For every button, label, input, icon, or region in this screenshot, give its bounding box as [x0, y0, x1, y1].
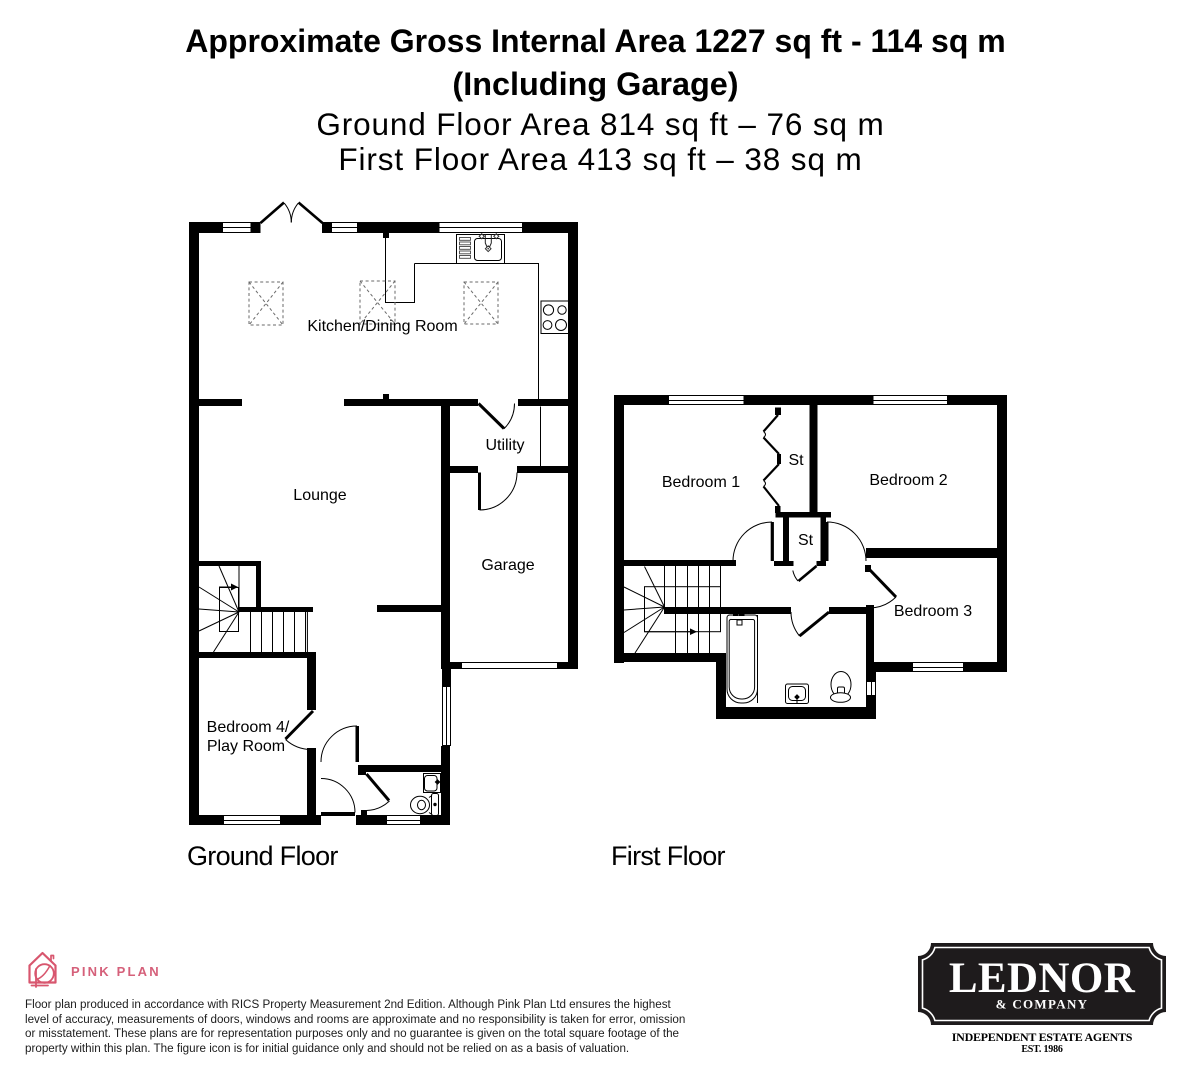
svg-text:Bedroom 2: Bedroom 2 [869, 472, 947, 489]
svg-text:Lounge: Lounge [293, 487, 346, 504]
svg-text:LEDNOR: LEDNOR [949, 955, 1136, 1002]
svg-text:Bedroom 4/: Bedroom 4/ [207, 719, 290, 736]
svg-text:& COMPANY: & COMPANY [996, 997, 1089, 1012]
svg-text:Kitchen/Dining Room: Kitchen/Dining Room [307, 318, 457, 335]
svg-text:Play Room: Play Room [207, 738, 285, 755]
svg-text:St: St [798, 532, 814, 549]
svg-text:Ground Floor: Ground Floor [187, 841, 338, 871]
svg-text:Bedroom 3: Bedroom 3 [894, 603, 972, 620]
svg-text:Bedroom 1: Bedroom 1 [662, 474, 740, 491]
svg-text:St: St [788, 452, 804, 469]
svg-text:Garage: Garage [481, 557, 534, 574]
svg-text:First Floor: First Floor [611, 841, 726, 871]
svg-text:Utility: Utility [485, 437, 524, 454]
